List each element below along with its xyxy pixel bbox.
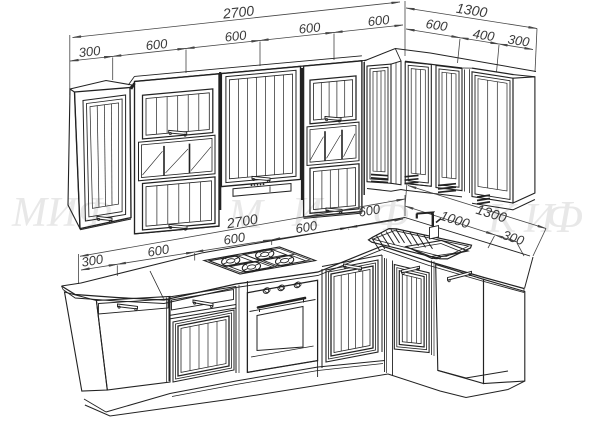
svg-text:600: 600 [145, 36, 169, 53]
svg-text:И: И [46, 190, 80, 236]
svg-text:300: 300 [78, 43, 102, 60]
svg-text:600: 600 [224, 27, 248, 44]
svg-text:М: М [11, 190, 49, 236]
svg-text:600: 600 [298, 19, 322, 36]
svg-text:600: 600 [367, 12, 391, 29]
svg-text:Ф: Ф [546, 191, 583, 242]
